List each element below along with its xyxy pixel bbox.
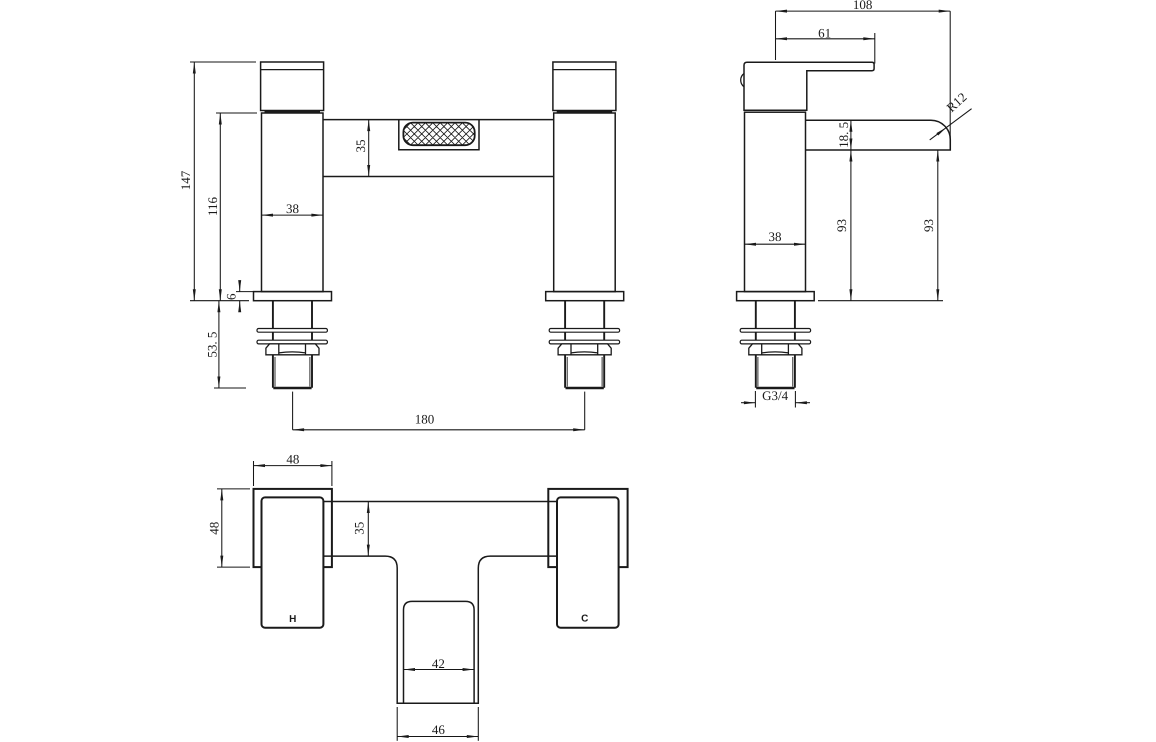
svg-text:38: 38 [286,201,299,216]
svg-text:53. 5: 53. 5 [204,332,219,358]
svg-text:C: C [581,614,588,625]
svg-text:38: 38 [769,229,782,244]
svg-text:48: 48 [207,522,222,535]
svg-text:180: 180 [415,411,435,426]
svg-text:147: 147 [178,170,193,190]
svg-text:116: 116 [205,196,220,216]
svg-text:R12: R12 [943,89,969,115]
svg-text:46: 46 [432,722,446,737]
svg-text:108: 108 [853,0,873,12]
svg-text:35: 35 [353,140,368,153]
svg-text:H: H [289,614,296,625]
svg-text:18. 5: 18. 5 [836,122,851,148]
svg-text:93: 93 [921,219,936,232]
svg-text:G3/4: G3/4 [762,388,789,403]
svg-text:42: 42 [432,656,445,671]
svg-text:35: 35 [351,522,366,535]
svg-text:48: 48 [286,451,299,466]
svg-text:93: 93 [834,219,849,232]
svg-text:61: 61 [818,26,831,41]
svg-text:6: 6 [223,293,238,300]
